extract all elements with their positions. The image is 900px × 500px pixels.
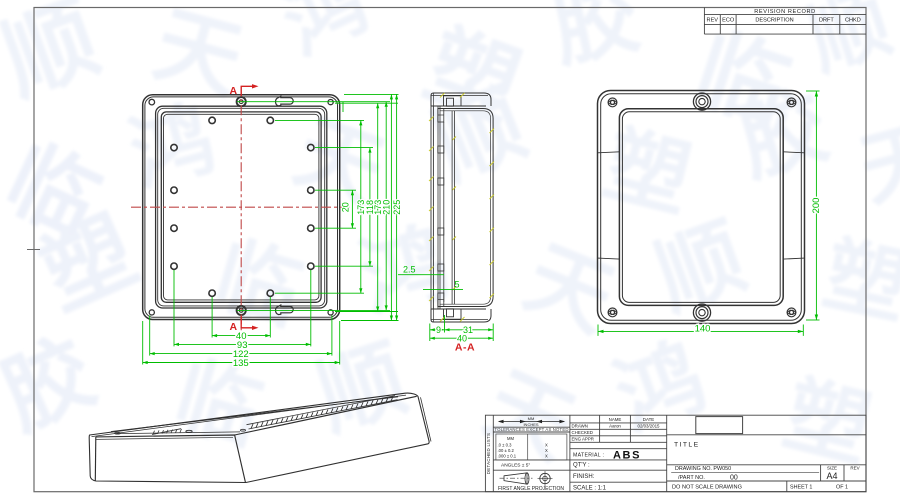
svg-text:TITLE: TITLE [674,442,700,449]
svg-text:FIRST ANGLE PROJECTION: FIRST ANGLE PROJECTION [498,486,564,492]
svg-text:OF 1: OF 1 [836,485,848,491]
svg-text:A: A [230,85,238,97]
svg-text:MM: MM [507,436,514,441]
svg-text:.000 ± 0.1: .000 ± 0.1 [498,454,517,459]
svg-text:A4: A4 [826,471,837,481]
svg-text:X: X [545,448,548,453]
svg-text:DRAWING NO. PW050: DRAWING NO. PW050 [675,466,731,472]
svg-text:CHECKED: CHECKED [572,430,593,435]
svg-text:2.5: 2.5 [403,265,416,275]
svg-text:A-A: A-A [455,342,475,354]
svg-text:SHEET 1: SHEET 1 [790,485,812,491]
svg-text:MATERIAL :: MATERIAL : [573,453,604,459]
svg-text:DRAWN: DRAWN [572,423,588,428]
svg-text:REV: REV [707,18,719,24]
svg-text:.0 ± 0.3: .0 ± 0.3 [498,443,513,448]
svg-text:X: X [545,443,548,448]
svg-text:DESCRIPTION: DESCRIPTION [755,18,793,24]
svg-text:NAME: NAME [609,417,622,422]
svg-text:ANGLES ± 5°: ANGLES ± 5° [501,463,530,469]
svg-text:FINISH:: FINISH: [573,474,595,480]
svg-text:ENG APPR: ENG APPR [572,436,594,441]
svg-text:225: 225 [392,200,402,215]
svg-text:QT'Y :: QT'Y : [573,463,590,469]
svg-text:DATE: DATE [643,417,654,422]
svg-text:CHKD: CHKD [845,18,861,24]
svg-text:5: 5 [455,279,460,289]
svg-text:210: 210 [382,200,392,215]
svg-text:REV: REV [850,466,859,471]
svg-text:SIZE: SIZE [827,466,837,471]
svg-text:/PART NO.: /PART NO. [678,475,705,481]
svg-text:.00 ± 0.2: .00 ± 0.2 [498,448,515,453]
svg-text:MM: MM [528,416,535,421]
svg-text:SCALE : 1:1: SCALE : 1:1 [573,485,607,491]
svg-text:20: 20 [341,202,351,212]
svg-text:135: 135 [233,358,249,369]
svg-text:Aaron: Aaron [609,424,621,429]
svg-text:DO NOT SCALE DRAWING: DO NOT SCALE DRAWING [672,485,742,491]
svg-text:ABS: ABS [613,450,641,462]
svg-text:TOLERANCES EXCEPT AS NOTED: TOLERANCES EXCEPT AS NOTED [494,427,568,432]
svg-text:ECO: ECO [722,18,735,24]
svg-text:9: 9 [436,325,441,335]
svg-text:REVISION RECORD: REVISION RECORD [754,9,816,15]
svg-text:140: 140 [695,324,711,335]
svg-text:DRFT: DRFT [819,18,834,24]
svg-text:200: 200 [811,198,822,214]
svg-text:02/03/2015: 02/03/2015 [638,424,661,429]
svg-text:X: X [545,454,548,459]
svg-text:DETACHED LISTS: DETACHED LISTS [486,433,491,474]
svg-text:00: 00 [730,475,738,482]
